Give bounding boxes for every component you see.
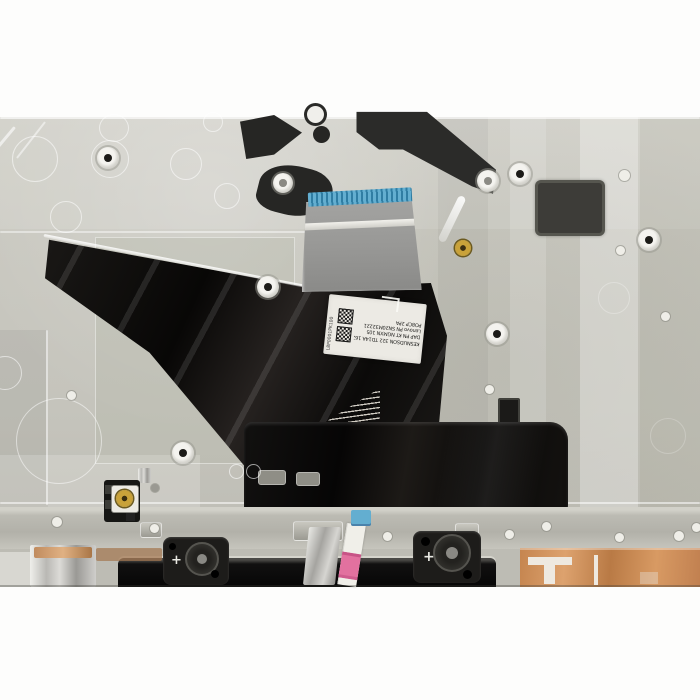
embossed-circle (203, 112, 223, 132)
bracket-screw-center (197, 554, 207, 564)
qr-column (334, 299, 354, 352)
membrane-slot (258, 470, 286, 485)
qr-code (337, 309, 353, 325)
part-bottom-edge (0, 585, 700, 587)
embossed-circle (229, 464, 244, 479)
screw-hole (273, 173, 293, 193)
rivet-dot (615, 533, 624, 542)
touchpad-bracket-left: + (163, 537, 229, 585)
rivet-dot (616, 246, 625, 255)
rf-gold-contact (116, 490, 133, 507)
rivet-dot (52, 517, 62, 527)
part-label: KESNUDSON 322 TD14A 1620068 DAP PN KT NG… (323, 294, 427, 364)
embossed-circle (214, 183, 240, 209)
rivet-dot (383, 532, 392, 541)
rivet-dot (150, 524, 159, 533)
qr-code (335, 327, 351, 343)
embossed-circle (598, 282, 630, 314)
embossed-circle (50, 201, 82, 233)
label-corner-bracket (380, 296, 400, 312)
screw-hole (97, 147, 119, 169)
screw-hole (486, 323, 508, 345)
plus-marking: + (171, 554, 182, 567)
adhesive-pad (535, 180, 605, 236)
foil-smudge (640, 572, 658, 584)
metal-bracket (30, 545, 96, 587)
copper-reflection (96, 548, 162, 561)
film-patch (640, 117, 700, 520)
embossed-circle (246, 464, 261, 479)
plate-cutout (313, 126, 330, 143)
keyboard-membrane-panel (244, 422, 568, 515)
screw-hole (257, 276, 279, 298)
rivet-dot (485, 385, 494, 394)
rivet-dot (67, 391, 76, 400)
rf-connector-tail (126, 513, 135, 521)
bracket-screw (433, 534, 471, 572)
copper-foil (520, 548, 700, 587)
bracket-hole (463, 570, 472, 579)
bottom-strip-corner (0, 552, 30, 587)
embossed-circle (99, 114, 129, 142)
membrane-slot (296, 472, 320, 486)
rivet-dot (151, 484, 159, 492)
embossed-circle (12, 136, 58, 182)
ffc-stiffener (351, 510, 371, 526)
bracket-copper-edge (34, 547, 92, 558)
screw-hole (638, 229, 660, 251)
ffc-label (338, 552, 361, 581)
screw-hole (477, 170, 499, 192)
bracket-hole (421, 537, 430, 546)
rivet-dot (619, 170, 630, 181)
film-seam (0, 231, 352, 233)
rivet-dot (674, 531, 684, 541)
screw-hole (172, 442, 194, 464)
bracket-screw-center (446, 547, 458, 559)
rivet-dot (661, 312, 670, 321)
screw-hole (509, 163, 531, 185)
metal-tab (138, 468, 151, 483)
rf-coax-connector (104, 480, 140, 522)
rivet-dot (505, 530, 514, 539)
touchpad-bracket-right: + (413, 531, 481, 583)
keyboard-ribbon-cable (300, 200, 422, 292)
grommet-hole (307, 106, 324, 123)
adhesive-pad (498, 398, 520, 424)
embossed-circle (650, 418, 686, 454)
foil-t-marking (544, 557, 555, 584)
bracket-hole (169, 543, 176, 550)
rivet-dot (542, 522, 551, 531)
embossed-circle (170, 148, 202, 180)
embossed-circle (16, 398, 102, 484)
rivet-dot (692, 523, 700, 532)
bracket-hole (211, 570, 219, 578)
foil-line-marking (594, 555, 598, 585)
brass-standoff (455, 240, 471, 256)
product-photo: KESNUDSON 322 TD14A 1620068 DAP PN KT NG… (0, 0, 700, 700)
metal-bracket (303, 527, 341, 585)
